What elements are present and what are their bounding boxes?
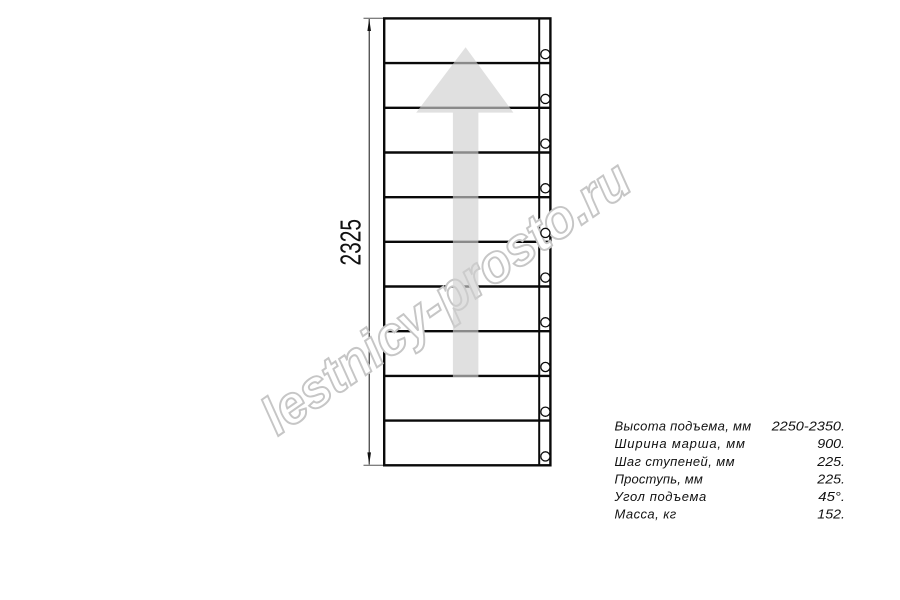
svg-text:2325: 2325 [336,219,368,266]
svg-text:Ширина марша, мм: Ширина марша, мм [615,436,745,451]
svg-text:Высота подъема, мм: Высота подъема, мм [615,419,752,434]
svg-text:Масса, кг: Масса, кг [615,507,677,522]
svg-text:900.: 900. [817,436,845,451]
svg-text:152.: 152. [817,507,845,522]
svg-text:45°.: 45°. [818,489,845,504]
svg-text:225.: 225. [816,471,845,486]
svg-text:225.: 225. [816,454,845,469]
svg-text:Угол подъема: Угол подъема [614,489,707,504]
svg-text:2250-2350.: 2250-2350. [770,419,845,434]
svg-text:Проступь, мм: Проступь, мм [615,471,703,486]
svg-text:Шаг ступеней, мм: Шаг ступеней, мм [615,454,735,469]
